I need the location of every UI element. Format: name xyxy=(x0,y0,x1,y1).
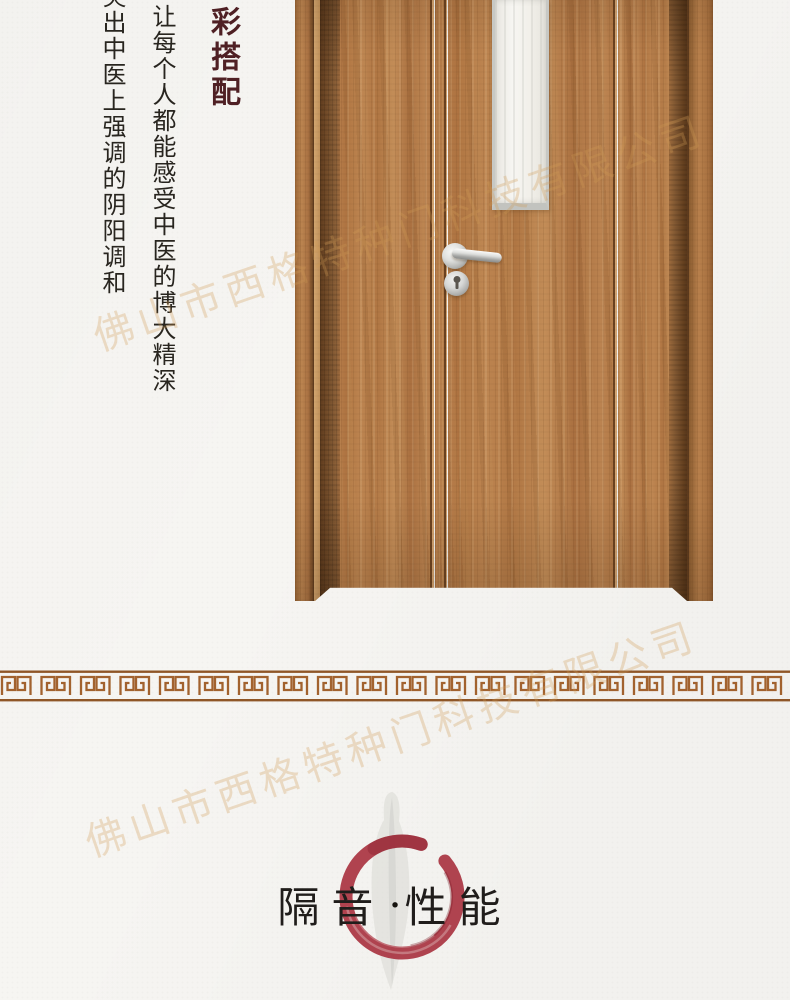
door-dark-band-right xyxy=(669,0,687,601)
door-panel-left xyxy=(340,0,430,601)
vertical-body-column-right: 让每个人都能感受中医的博大精深 xyxy=(144,4,179,394)
door-lock-cylinder xyxy=(444,271,469,296)
section-title: 隔音 · 性能 xyxy=(0,874,790,935)
door-panel-right xyxy=(618,0,669,601)
meander-divider-border xyxy=(0,669,790,703)
door-product-image xyxy=(295,0,713,601)
page-canvas: 彩搭配 让每个人都能感受中医的博大精深 突出中医上强调的阴阳调和 佛山市西格特种… xyxy=(0,0,790,1000)
vertical-subtitle: 彩搭配 xyxy=(200,6,244,111)
keyhole-icon xyxy=(453,276,460,283)
door-frame-left-post xyxy=(295,0,314,601)
section-title-separator-dot: · xyxy=(387,878,402,931)
door-panel-strip xyxy=(435,0,444,601)
door-dark-band-left xyxy=(320,0,340,601)
section-title-right: 性能 xyxy=(405,874,513,935)
section-title-left: 隔音 xyxy=(277,874,385,935)
vertical-body-column-left: 突出中医上强调的阴阳调和 xyxy=(94,0,129,296)
door-frame-right-post xyxy=(687,0,713,601)
frosted-glass-panel xyxy=(492,0,549,210)
